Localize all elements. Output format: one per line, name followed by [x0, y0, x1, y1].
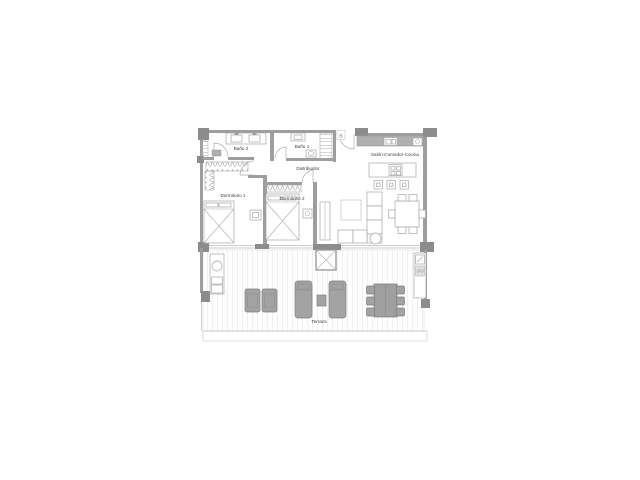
- sink: [291, 133, 305, 141]
- bedroom-1: Dormitorio 1: [204, 162, 261, 243]
- pier-terrace-left: [201, 291, 210, 302]
- kitchen-island: [369, 163, 416, 177]
- bathroom-1: Baño 1: [291, 133, 332, 159]
- terrace-outer-edge-line: [203, 331, 427, 341]
- room-label-bath2: Baño 2: [234, 146, 249, 151]
- bed: [204, 201, 234, 243]
- kitchen-counter: [357, 136, 423, 146]
- shower: [320, 133, 332, 159]
- outdoor-dining-set: [367, 284, 405, 317]
- wall-bedroom2-top: [266, 182, 302, 185]
- pier-bottom-left: [198, 242, 209, 252]
- outdoor-bar: [210, 254, 224, 294]
- dining-set: [389, 195, 426, 234]
- wall-bath2-bath1-divider: [270, 132, 274, 161]
- room-label-living: Salón-Comedor-Cocina: [371, 152, 419, 157]
- wall-hall-bedroom1: [248, 175, 267, 178]
- wall-right: [423, 134, 427, 244]
- barbecue-unit: [414, 253, 426, 298]
- toilet: [306, 150, 316, 157]
- wall-top-bedrooms: [202, 130, 336, 133]
- toilet: [212, 150, 221, 156]
- closet-top: [206, 162, 248, 171]
- room-label-bedroom2: Dormitorio 2: [279, 196, 304, 201]
- pier-bottom-1: [255, 244, 269, 249]
- pier-bottom-2: [313, 244, 341, 250]
- wall-entry-left: [333, 132, 336, 162]
- tv-sideboard: [320, 202, 330, 240]
- lounger-side-table: [317, 295, 326, 306]
- wall-bedroom2-living: [313, 182, 317, 244]
- door-bath1: [275, 147, 286, 158]
- bedroom-2: Dormitorio 2: [266, 185, 312, 240]
- room-label-hall: Distribuidor: [296, 166, 320, 171]
- pier-top-right: [423, 128, 437, 137]
- bedside-bench: [250, 210, 261, 220]
- skylight-shaft: [316, 250, 336, 270]
- pier-terrace-right: [421, 299, 430, 308]
- bathroom-2: Baño 2: [202, 133, 266, 158]
- closet-left: [205, 171, 214, 190]
- wall-terrace-left: [200, 248, 203, 293]
- pier-entrance-right: [355, 128, 368, 136]
- section-marker-b: B: [339, 134, 343, 140]
- nightstand: [303, 209, 312, 218]
- room-label-bath1: Baño 1: [295, 144, 310, 149]
- floor-plan-page: Baño 2 Baño 1 B Distribuidor: [0, 0, 640, 480]
- side-table-round: [370, 233, 381, 244]
- closet: [266, 185, 301, 192]
- wall-bath2-bottom-b: [228, 157, 254, 160]
- rug: [341, 200, 361, 220]
- bar-stools: [374, 181, 409, 190]
- pier-top-left: [198, 128, 209, 140]
- double-vanity: [226, 133, 266, 144]
- towel-radiator: [202, 141, 208, 158]
- door-bedroom2: [302, 170, 313, 183]
- room-label-bedroom1: Dormitorio 1: [220, 193, 245, 198]
- floor-plan-drawing: Baño 2 Baño 1 B Distribuidor: [0, 0, 640, 480]
- room-label-terrace: Terraza: [311, 319, 327, 324]
